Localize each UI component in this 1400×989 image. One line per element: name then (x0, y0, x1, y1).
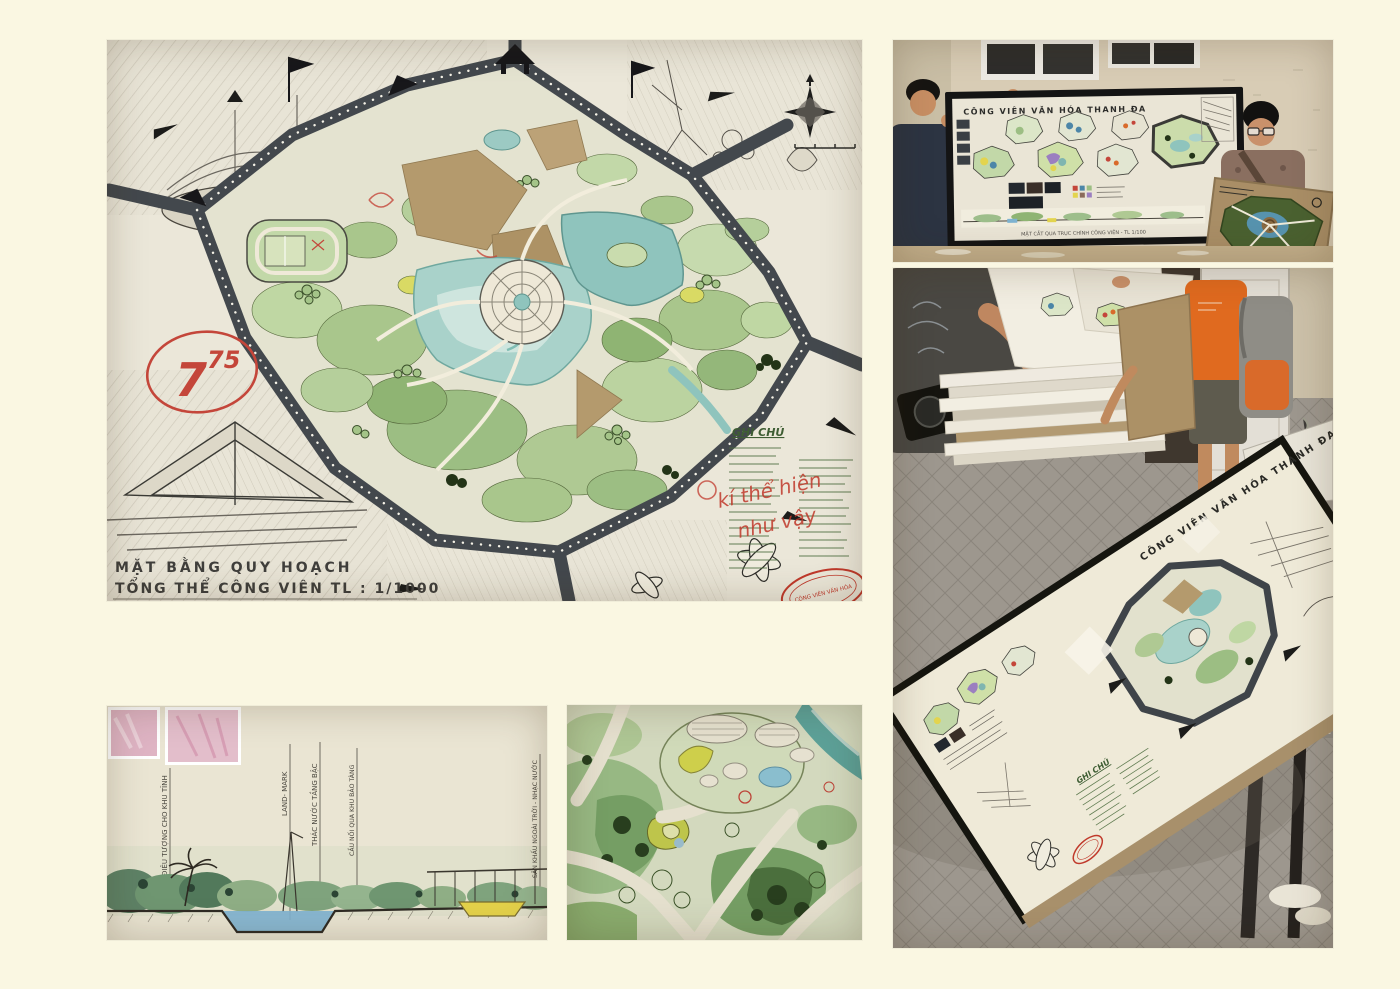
backpack (1239, 296, 1293, 418)
boat-shape (459, 902, 525, 916)
board-on-table-photo: CÔNG VIÊN VĂN HÓA THANH ĐA GHI CHÚ (893, 268, 1333, 948)
sports-area (247, 220, 347, 282)
grade-main: 7 (175, 353, 207, 407)
section-label-2: LAND- MARK (281, 771, 289, 816)
reference-photos (108, 707, 241, 765)
plan-title-line1: MẶT BẰNG QUY HOẠCH (115, 557, 353, 576)
presentation-board: CÔNG VIÊN VĂN HÓA THANH ĐA (945, 87, 1246, 248)
section-drawing-photo: ĐIÊU TƯỢNG CHO KHU TĨNH LAND- MARK THÁC … (107, 706, 547, 940)
section-label-3: THÁC NƯỚC TẦNG BẬC (309, 763, 319, 847)
grade-superscript: 75 (207, 346, 240, 374)
central-plaza (480, 260, 564, 344)
masterplan-drawing-photo: 7 75 GHI CHÚ kí thể hiện như vậy CÔNG VI… (107, 40, 862, 601)
legend-title: GHI CHÚ (732, 426, 784, 439)
section-label-1: ĐIÊU TƯỢNG CHO KHU TĨNH (160, 775, 169, 876)
plan-closeup-photo (567, 705, 862, 940)
students-presentation-photo: CÔNG VIÊN VĂN HÓA THANH ĐA (893, 40, 1333, 262)
table-edge (893, 246, 1333, 262)
